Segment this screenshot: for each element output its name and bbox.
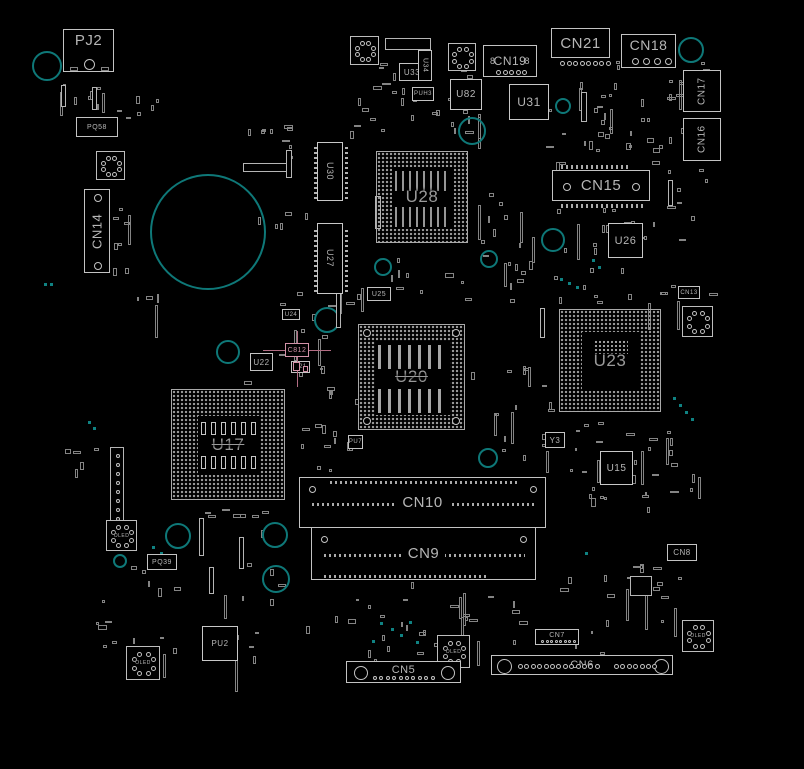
ref-label: CN16 xyxy=(684,119,720,160)
coil-pad xyxy=(469,59,474,64)
ref-label-text: CN8 xyxy=(671,548,693,557)
coil-component[interactable]: OLED xyxy=(682,620,714,652)
passive-part xyxy=(411,582,414,589)
part-y3[interactable]: Y3 xyxy=(545,432,565,448)
passive-part xyxy=(601,120,604,124)
pin-dot xyxy=(588,664,593,669)
passive-part xyxy=(244,381,253,385)
passive-part xyxy=(642,495,649,498)
passive-part xyxy=(465,617,468,620)
passive-part xyxy=(614,83,617,91)
pin-dot xyxy=(593,61,598,66)
passive-part xyxy=(647,138,654,142)
ref-label: U24 xyxy=(283,310,299,319)
passive-part xyxy=(315,424,322,428)
ref-label-text: CN10 xyxy=(396,494,448,511)
ref-label: U17 xyxy=(172,390,284,499)
coil-component[interactable] xyxy=(682,306,713,337)
pin-dot xyxy=(569,664,574,669)
passive-part xyxy=(270,599,274,606)
passive-part xyxy=(96,622,99,625)
passive-part xyxy=(174,587,181,591)
ref-label-text: PUH3 xyxy=(412,91,434,97)
ref-label: U27 xyxy=(318,224,342,293)
pin-dot xyxy=(546,640,549,643)
passive-part xyxy=(322,425,325,434)
passive-part xyxy=(282,140,290,143)
bga-u20[interactable]: U20 xyxy=(358,324,465,430)
pin-dot xyxy=(496,70,501,75)
passive-part xyxy=(380,615,385,618)
ref-label-text: CN14 xyxy=(88,213,107,248)
coil-component[interactable]: OLED xyxy=(106,520,137,551)
passive-part xyxy=(495,413,498,416)
bga-u23[interactable]: U23 xyxy=(559,309,661,412)
coil-component[interactable]: OLED xyxy=(126,646,160,680)
coil-pad xyxy=(705,324,710,329)
passive-part xyxy=(396,287,404,290)
teal-circle-marker xyxy=(480,250,498,268)
part-puh3[interactable]: PUH3 xyxy=(412,87,434,101)
passive-part xyxy=(576,430,580,433)
passive-part xyxy=(262,129,266,132)
passive-part xyxy=(463,593,466,626)
passive-part xyxy=(102,600,105,603)
ref-label: U26 xyxy=(609,224,642,257)
slot-part xyxy=(199,518,204,556)
slot-part xyxy=(385,38,431,50)
teal-circle-marker xyxy=(216,340,240,364)
passive-part xyxy=(511,412,514,444)
passive-part xyxy=(354,125,362,128)
via-dot xyxy=(409,621,412,624)
pin-dot xyxy=(418,676,422,680)
passive-part xyxy=(113,217,119,219)
ref-label-text: U31 xyxy=(515,95,543,109)
pin-dot xyxy=(516,70,521,75)
part-u24[interactable]: U24 xyxy=(282,309,300,320)
passive-part xyxy=(698,477,701,499)
ref-label: CN13 xyxy=(679,287,699,298)
pin-dot xyxy=(563,664,568,669)
mount-hole xyxy=(497,659,512,674)
passive-part xyxy=(677,202,682,204)
passive-part xyxy=(302,428,310,431)
pin-dot xyxy=(654,58,661,65)
connector-cn7[interactable]: CN7 xyxy=(535,629,579,645)
passive-part xyxy=(523,455,526,461)
passive-part xyxy=(381,129,385,131)
passive-part xyxy=(504,215,508,221)
coil-pad xyxy=(355,52,360,57)
pin-dot xyxy=(550,664,555,669)
pin-dot xyxy=(116,499,120,503)
teal-circle-marker xyxy=(374,258,392,276)
part-pq39[interactable]: PQ39 xyxy=(147,554,177,570)
passive-part xyxy=(155,305,158,338)
pin-dot xyxy=(646,664,651,669)
ref-label-text: U23 xyxy=(592,351,629,371)
connector-cn14[interactable]: CN14 xyxy=(84,189,110,273)
passive-part xyxy=(289,145,292,150)
pin-dot xyxy=(537,664,542,669)
passive-part xyxy=(670,438,672,446)
pin-dot xyxy=(550,640,553,643)
passive-part xyxy=(691,216,695,220)
passive-part xyxy=(583,285,585,290)
ref-label-text: PU7 xyxy=(347,439,364,445)
ref-label: U30 xyxy=(318,143,342,200)
passive-part xyxy=(510,299,515,303)
passive-part xyxy=(562,133,567,135)
coil-component[interactable] xyxy=(96,151,125,180)
slot-part xyxy=(668,180,673,206)
ref-label: U22 xyxy=(251,354,272,370)
ref-label: U15 xyxy=(601,452,632,484)
ref-label: OLED xyxy=(683,621,713,651)
passive-part xyxy=(504,263,507,287)
ref-label: CN14 xyxy=(85,190,109,272)
coil-pad xyxy=(371,52,376,57)
passive-part xyxy=(235,657,238,693)
passive-part xyxy=(649,438,658,441)
passive-part xyxy=(564,248,567,252)
passive-part xyxy=(469,619,478,622)
via-dot xyxy=(691,418,694,421)
passive-part xyxy=(471,372,475,380)
coil-pad xyxy=(117,161,122,166)
via-dot xyxy=(598,266,601,269)
passive-part xyxy=(124,222,130,225)
pin-dot xyxy=(564,640,567,643)
passive-part xyxy=(317,466,321,470)
boardview-canvas[interactable]: OLEDOLEDOLEDOLEDU28U20U23U17U31U82U26U15… xyxy=(0,0,804,769)
highlighted-component-c812[interactable]: C812 xyxy=(285,343,309,357)
ref-label-text: CN13 xyxy=(678,290,699,296)
coil-pad xyxy=(112,172,117,177)
teal-circle-marker xyxy=(678,37,704,63)
passive-part xyxy=(504,436,506,442)
ref-label: U28 xyxy=(377,152,467,242)
passive-part xyxy=(133,638,136,644)
pin-dot xyxy=(640,664,645,669)
passive-part xyxy=(156,99,160,103)
passive-part xyxy=(557,209,561,214)
passive-part xyxy=(247,563,251,566)
passive-part xyxy=(368,650,370,658)
passive-part xyxy=(454,128,456,134)
passive-part xyxy=(465,298,472,301)
via-dot xyxy=(372,640,375,643)
coil-pad xyxy=(469,52,474,57)
via-dot xyxy=(391,628,394,631)
ref-label-text: PQ39 xyxy=(150,559,174,566)
passive-part xyxy=(678,577,682,580)
passive-part xyxy=(597,301,603,304)
slot-part xyxy=(209,567,214,594)
ref-label: U34 xyxy=(419,51,431,80)
passive-part xyxy=(591,631,593,635)
passive-part xyxy=(652,474,659,476)
passive-part xyxy=(74,97,77,105)
via-dot xyxy=(152,546,155,549)
coil-pad xyxy=(360,41,365,46)
passive-part xyxy=(652,161,660,165)
connector-cn17[interactable]: CN17 xyxy=(683,70,721,112)
via-dot xyxy=(88,421,91,424)
passive-part xyxy=(224,595,227,619)
passive-part xyxy=(592,487,596,491)
pin-dot xyxy=(518,664,523,669)
teal-circle-marker xyxy=(555,98,571,114)
passive-part xyxy=(348,619,356,623)
passive-part xyxy=(387,646,389,653)
connector-cn16[interactable]: CN16 xyxy=(683,118,721,161)
slot-part xyxy=(581,92,587,122)
part-cn8[interactable]: CN8 xyxy=(667,544,697,561)
part-cn13[interactable]: CN13 xyxy=(678,286,700,299)
passive-part xyxy=(88,96,92,100)
passive-part xyxy=(301,329,304,333)
connector-cn18[interactable]: CN18 xyxy=(621,34,676,68)
passive-part xyxy=(647,507,650,513)
bga-u17[interactable]: U17 xyxy=(171,389,285,500)
passive-part xyxy=(647,118,651,122)
passive-part xyxy=(163,654,166,678)
passive-part xyxy=(594,295,597,299)
passive-part xyxy=(157,294,159,303)
passive-part xyxy=(679,239,686,241)
passive-part xyxy=(598,132,604,136)
passive-part xyxy=(160,637,164,639)
passive-part xyxy=(671,285,675,288)
connector-cn15[interactable]: CN15 xyxy=(552,170,650,201)
passive-part xyxy=(653,222,655,227)
pin-dot xyxy=(576,664,581,669)
passive-part xyxy=(233,514,240,518)
pin-dot xyxy=(116,481,120,485)
passive-part xyxy=(97,104,100,110)
chip-u30[interactable]: U30 xyxy=(317,142,343,201)
connector-cn10[interactable]: CN10 xyxy=(299,477,546,528)
coil-pad xyxy=(457,47,462,52)
ref-label: Y3 xyxy=(546,433,564,447)
passive-part xyxy=(669,80,672,83)
pin-dot xyxy=(541,640,544,643)
coil-pad xyxy=(360,57,365,62)
part-pq58[interactable]: PQ58 xyxy=(76,117,118,137)
passive-part xyxy=(284,125,293,129)
ref-label-text: U34 xyxy=(420,58,431,72)
pin-dot xyxy=(614,664,619,669)
passive-part xyxy=(669,94,672,101)
passive-part xyxy=(549,109,552,112)
passive-part xyxy=(512,610,521,614)
passive-part xyxy=(488,216,490,222)
coil-component[interactable] xyxy=(448,43,476,71)
passive-part xyxy=(507,370,512,373)
pin-dot xyxy=(524,664,529,669)
passive-part xyxy=(391,275,393,283)
pin-dot xyxy=(116,490,120,494)
passive-part xyxy=(705,179,708,183)
passive-part xyxy=(679,80,682,110)
passive-part xyxy=(361,288,364,312)
passive-part xyxy=(667,206,676,210)
teal-circle-marker xyxy=(165,523,191,549)
pin-dot xyxy=(633,664,638,669)
connector-cn19[interactable]: CN1988 xyxy=(483,45,537,77)
pin-dot xyxy=(509,70,514,75)
passive-part xyxy=(253,656,256,665)
passive-part xyxy=(370,118,376,121)
pin-dot xyxy=(503,70,508,75)
ref-label-text: OLED xyxy=(133,660,153,666)
passive-part xyxy=(577,224,580,259)
pin-dot xyxy=(632,58,639,65)
part-u34[interactable]: U34 xyxy=(418,50,432,81)
connector-pj2[interactable]: PJ2 xyxy=(63,29,114,72)
pin-dot xyxy=(567,61,572,66)
passive-part xyxy=(119,208,123,211)
connector-cn9[interactable]: CN9 xyxy=(311,527,536,580)
passive-part xyxy=(459,597,462,619)
mount-hole xyxy=(94,194,102,202)
passive-part xyxy=(105,621,112,623)
passive-part xyxy=(436,110,440,116)
jack-tab xyxy=(70,67,78,71)
passive-part xyxy=(305,213,308,220)
teal-circle-marker xyxy=(32,51,62,81)
chip-u82[interactable]: U82 xyxy=(450,79,482,110)
pin-row xyxy=(314,227,317,292)
connector-cn5[interactable]: CN5 xyxy=(346,661,461,683)
passive-part xyxy=(406,625,408,630)
pin-row xyxy=(561,165,629,169)
passive-part xyxy=(379,67,384,69)
chip-u31[interactable]: U31 xyxy=(509,84,549,120)
passive-part xyxy=(373,86,382,89)
passive-part xyxy=(601,95,606,98)
passive-part xyxy=(494,413,497,436)
teal-circle-marker xyxy=(150,174,266,290)
passive-part xyxy=(546,451,549,473)
pin-dot xyxy=(559,640,562,643)
via-dot xyxy=(50,283,53,286)
passive-part xyxy=(488,596,494,598)
pin-dot xyxy=(560,61,565,66)
passive-part xyxy=(692,474,695,483)
passive-part xyxy=(597,106,603,109)
passive-part xyxy=(112,641,117,644)
passive-part xyxy=(701,62,705,64)
passive-part xyxy=(517,279,524,283)
ref-label-text: U24 xyxy=(283,312,300,318)
ref-label-text: CN7 xyxy=(547,632,567,639)
passive-part xyxy=(584,141,586,146)
connector-cn21[interactable]: CN21 xyxy=(551,28,610,58)
passive-part xyxy=(73,451,81,454)
passive-part xyxy=(671,463,679,467)
passive-part xyxy=(669,137,672,145)
chip-u26[interactable]: U26 xyxy=(608,223,643,258)
ref-label: U23 xyxy=(560,310,660,411)
coil-pad xyxy=(705,316,710,321)
part-pu7[interactable]: PU7 xyxy=(348,435,363,449)
mount-hole xyxy=(563,183,571,191)
passive-part xyxy=(252,515,260,518)
connector-cn6[interactable]: CN6 xyxy=(491,655,673,675)
coil-pad xyxy=(106,156,111,161)
passive-part xyxy=(499,202,503,206)
via-dot xyxy=(44,283,47,286)
highlight-part xyxy=(293,362,300,371)
pin-dot xyxy=(399,676,403,680)
passive-part xyxy=(519,243,522,249)
slot-part xyxy=(61,85,66,107)
pin-dot xyxy=(116,454,120,458)
coil-pad xyxy=(700,311,705,316)
coil-pad xyxy=(366,41,371,46)
pin-dot xyxy=(620,664,625,669)
passive-part xyxy=(604,575,606,582)
coil-pad xyxy=(452,52,457,57)
chip-pu2[interactable]: PU2 xyxy=(202,626,238,661)
passive-part xyxy=(593,243,597,247)
passive-part xyxy=(356,599,359,601)
passive-part xyxy=(65,449,70,453)
pin-dot xyxy=(573,640,576,643)
pin-dot xyxy=(627,664,632,669)
passive-part xyxy=(546,146,555,148)
part-u25[interactable]: U25 xyxy=(367,287,391,301)
passive-part xyxy=(575,448,577,451)
passive-part xyxy=(605,134,610,138)
passive-part xyxy=(519,621,528,625)
slot-part xyxy=(540,308,545,338)
pin-dot xyxy=(544,664,549,669)
ref-label: CN21 xyxy=(552,29,609,57)
mount-hole xyxy=(94,262,102,270)
passive-part xyxy=(137,112,141,116)
passive-part xyxy=(208,515,217,518)
passive-part xyxy=(674,608,677,636)
passive-part xyxy=(173,648,177,654)
ref-label: U25 xyxy=(368,288,390,300)
passive-part xyxy=(640,565,643,569)
bga-u28[interactable]: U28 xyxy=(376,151,468,243)
passive-part xyxy=(401,98,404,106)
ref-label-text: CN21 xyxy=(558,35,602,52)
part-u22[interactable]: U22 xyxy=(250,353,273,371)
passive-part xyxy=(603,208,607,212)
passive-part xyxy=(94,448,99,451)
via-dot xyxy=(679,404,682,407)
passive-part xyxy=(137,297,139,301)
pin-dot xyxy=(595,664,600,669)
passive-part xyxy=(626,143,630,150)
passive-part xyxy=(510,283,512,290)
chip-u27[interactable]: U27 xyxy=(317,223,343,294)
highlight-part xyxy=(303,366,308,372)
passive-part xyxy=(126,117,131,120)
coil-component[interactable] xyxy=(350,36,379,65)
ref-label: OLED xyxy=(127,647,159,679)
chip-u15[interactable]: U15 xyxy=(600,451,633,485)
pin-row xyxy=(314,146,317,199)
pin-dot xyxy=(568,640,571,643)
pin-dot xyxy=(582,664,587,669)
